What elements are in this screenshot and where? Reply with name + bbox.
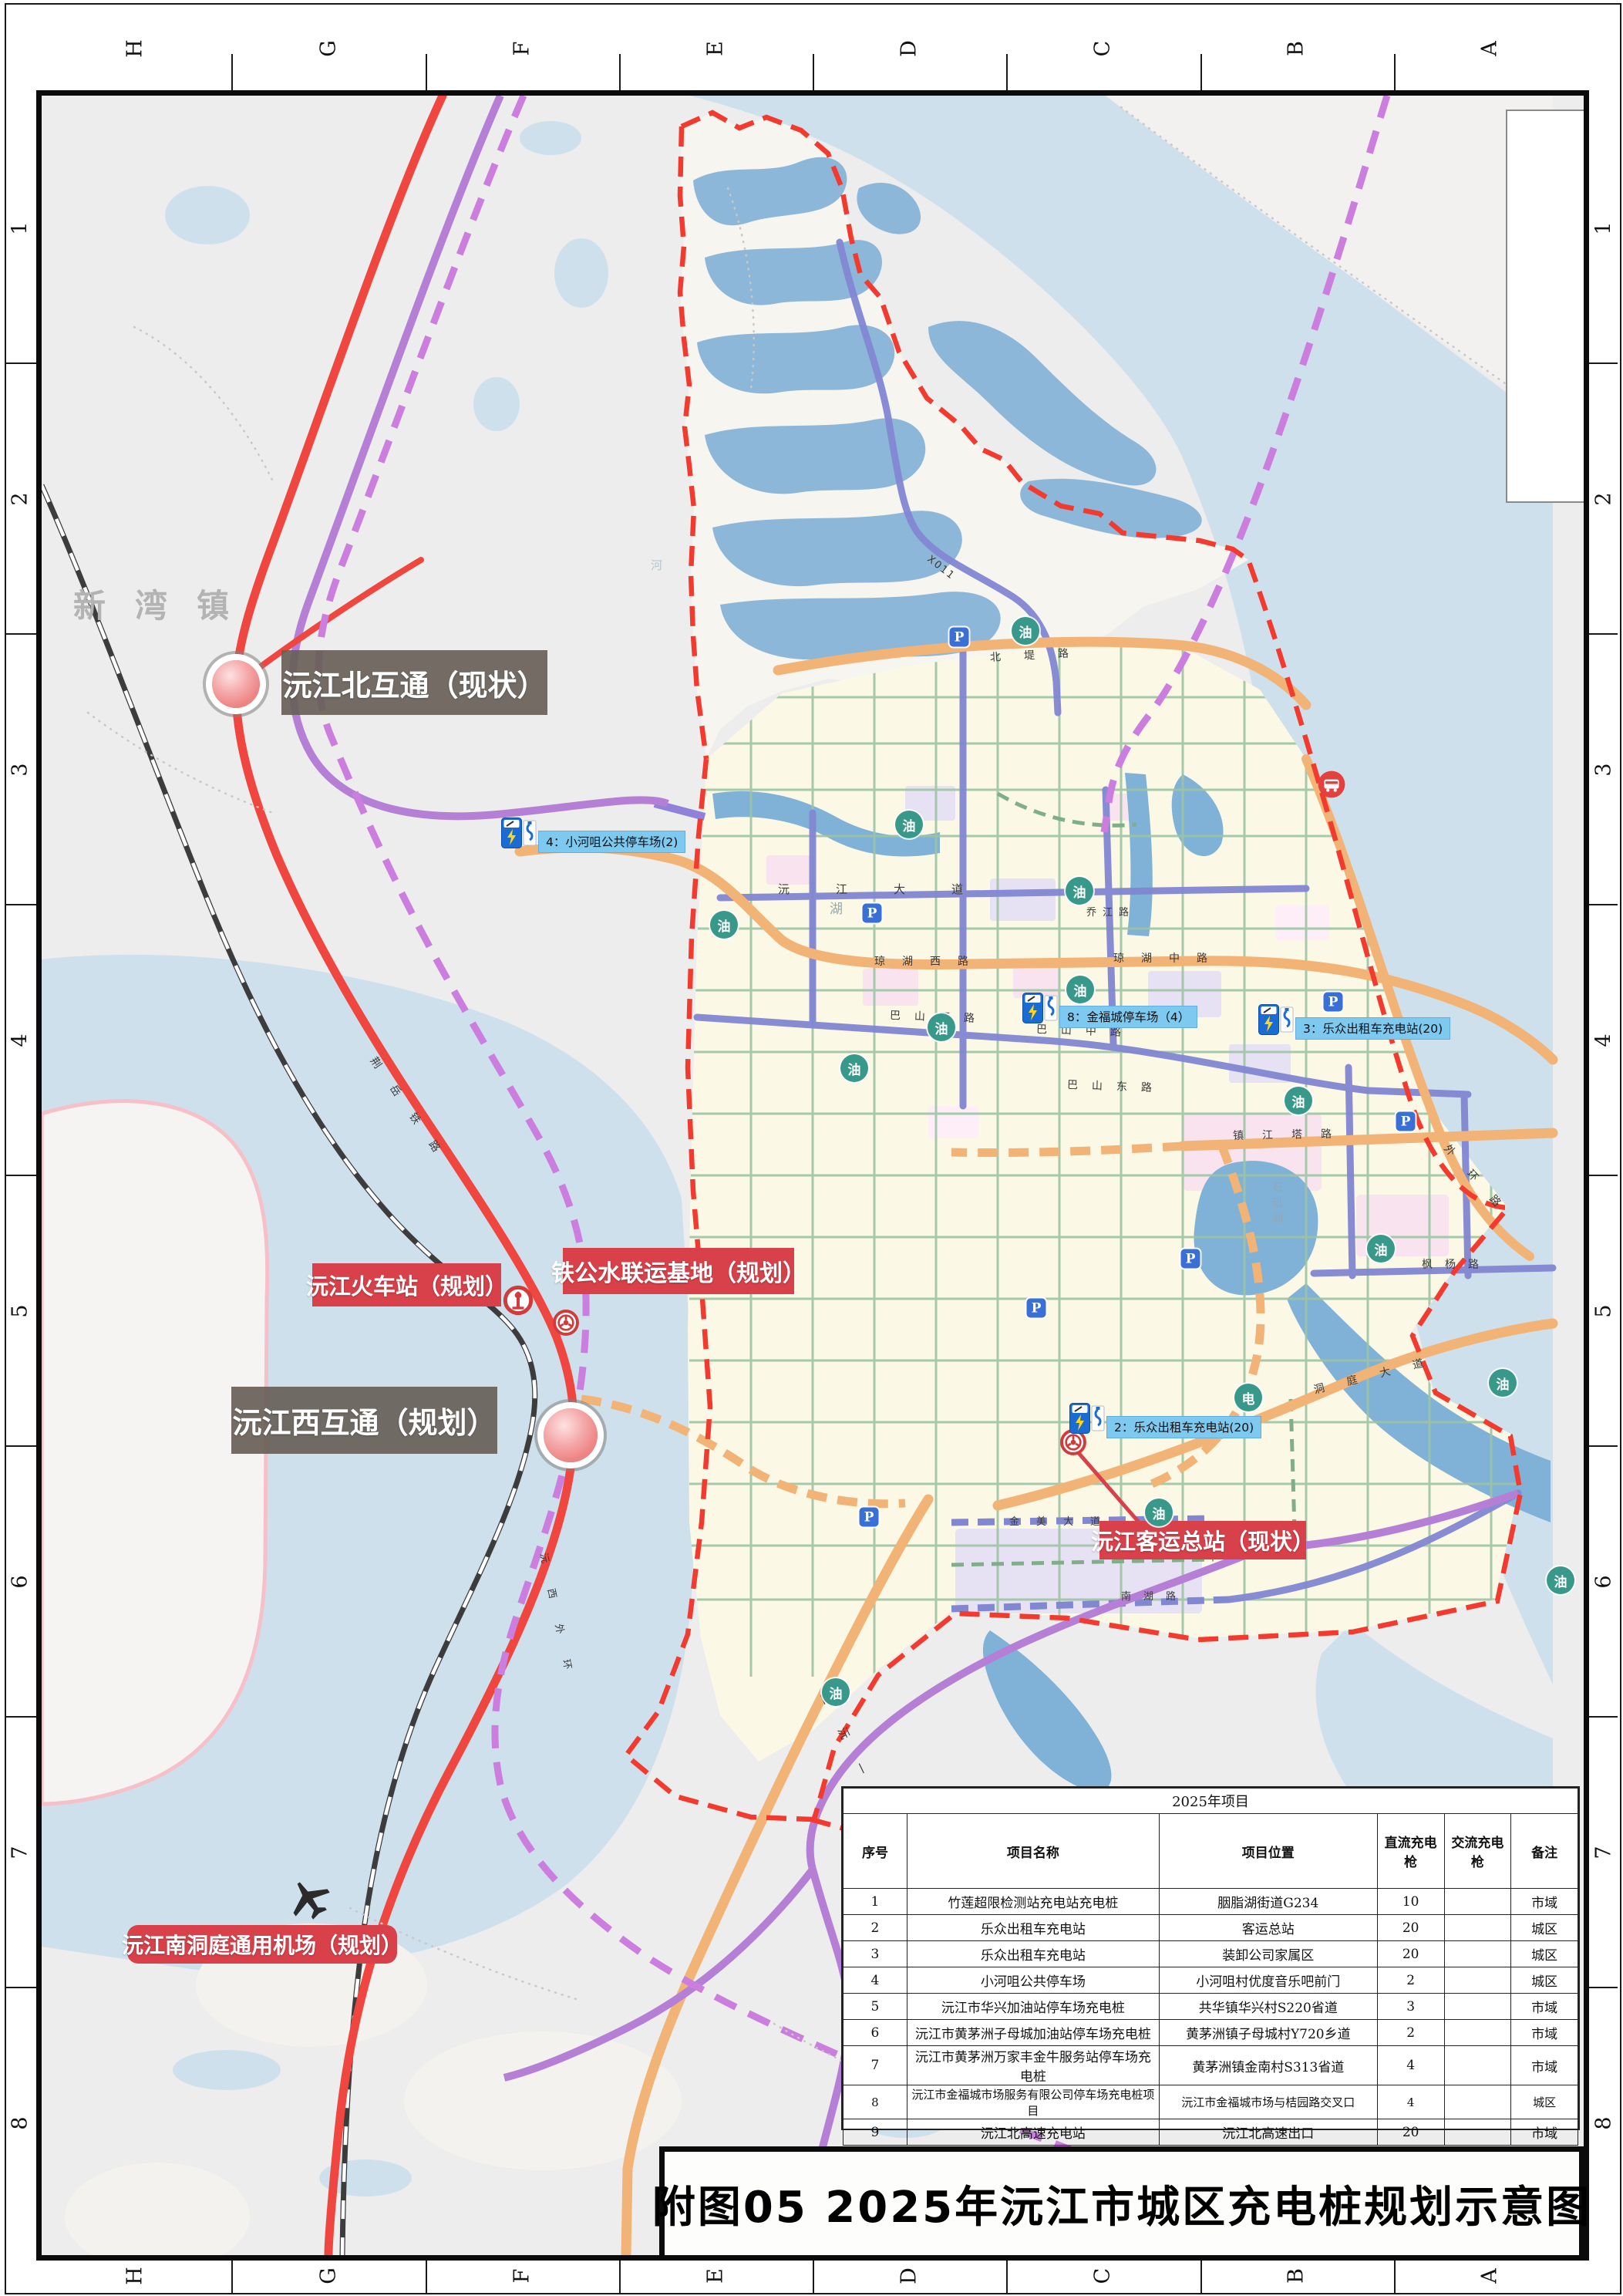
parking-icon: P [1027, 1299, 1046, 1318]
grid-tick [231, 54, 233, 93]
gas-station-icon: 油 [1367, 1235, 1395, 1263]
grid-tick [1394, 54, 1396, 93]
table-row: 7沅江市黄茅洲万家丰金牛服务站停车场充电桩黄茅洲镇金南村S313省道4市域 [843, 2046, 1578, 2085]
gas-station-icon: 油 [1012, 617, 1039, 645]
table-cell: 20 [1377, 1941, 1444, 1967]
charging-pile-icon [1258, 1004, 1294, 1038]
grid-tick [1586, 362, 1618, 364]
table-cell [1444, 2020, 1511, 2046]
grid-tick [1006, 54, 1008, 93]
table-row: 2乐众出租车充电站客运总站20城区 [843, 1915, 1578, 1941]
gas-station-icon: 油 [710, 911, 738, 939]
grid-tick [813, 54, 814, 93]
charging-pile-icon [1022, 993, 1058, 1027]
bus-station-icon [1317, 770, 1346, 802]
table-cell: 3 [1377, 1994, 1444, 2020]
road-name-label: 南湖路 [1121, 1588, 1188, 1603]
grid-tick [813, 2258, 814, 2293]
table-cell [1444, 1941, 1511, 1967]
grid-tick [231, 2258, 233, 2293]
charging-station-label: 8：金福城停车场（4） [1022, 993, 1197, 1028]
grid-letter-e-top: E [704, 41, 728, 56]
table-row: 5沅江市华兴加油站停车场充电桩共华镇华兴村S220省道3市域 [843, 1994, 1578, 2020]
table-cell: 沅江市黄茅洲子母城加油站停车场充电桩 [907, 2020, 1159, 2046]
parking-icon: P [1396, 1112, 1416, 1131]
gas-station-icon: 油 [1285, 1087, 1312, 1114]
table-cell: 市域 [1511, 2046, 1578, 2085]
gas-station-icon: 油 [1489, 1369, 1517, 1397]
grid-number-2-left: 2 [8, 492, 32, 505]
grid-letter-c-top: C [1091, 41, 1115, 57]
grid-tick [6, 1175, 38, 1176]
table-cell: 沅江市黄茅洲万家丰金牛服务站停车场充电桩 [907, 2046, 1159, 2085]
table-cell: 6 [843, 2020, 907, 2046]
charging-pile-icon [1069, 1403, 1105, 1437]
grid-letter-a-top: A [1478, 41, 1502, 56]
drawing-title: 附图05 2025年沅江市城区充电桩规划示意图 [652, 2173, 1591, 2235]
grid-number-8-left: 8 [8, 2116, 32, 2129]
table-cell: 5 [843, 1994, 907, 2020]
table-header-cell: 项目位置 [1159, 1814, 1377, 1889]
grid-tick [1200, 54, 1202, 93]
table-cell: 市域 [1511, 2020, 1578, 2046]
grid-letter-f-top: F [510, 42, 534, 56]
grid-letter-d-bottom: D [897, 2267, 921, 2284]
transport-hub-icon [552, 1309, 580, 1340]
table-cell: 2 [1377, 2020, 1444, 2046]
table-cell: 1 [843, 1889, 907, 1915]
road-name-label: 琼湖中路 [1113, 950, 1224, 966]
table-row: 3乐众出租车充电站装卸公司家属区20城区 [843, 1941, 1578, 1967]
table-cell: 客运总站 [1159, 1915, 1377, 1941]
callout-label-red: 沅江火车站（规划） [312, 1263, 501, 1306]
grid-tick [6, 633, 38, 635]
grid-number-7-right: 7 [1592, 1846, 1616, 1859]
charging-station-label-text: 8：金福城停车场（4） [1059, 1006, 1197, 1028]
grid-tick [6, 904, 38, 905]
grid-number-8-right: 8 [1592, 2116, 1616, 2129]
table-cell [1444, 1889, 1511, 1915]
water-name-label: 石矶湖 [1269, 1182, 1285, 1228]
grid-letter-h-bottom: H [123, 2267, 147, 2285]
table-cell: 装卸公司家属区 [1159, 1941, 1377, 1967]
grid-number-4-right: 4 [1592, 1033, 1616, 1047]
gas-station-icon: 油 [1066, 877, 1093, 905]
parking-icon: P [1181, 1249, 1200, 1269]
charging-station-label: 2：乐众出租车充电站(20) [1069, 1403, 1261, 1438]
table-cell: 市域 [1511, 1889, 1578, 1915]
table-cell: 市域 [1511, 2119, 1578, 2146]
table-cell: 沅江北高速出口 [1159, 2119, 1377, 2146]
grid-tick [1586, 633, 1618, 635]
map-canvas: 新湾镇湖河石矶湖沅江大道琼湖西路琼湖中路巴山西路巴山中路巴山东路北堤路镇江塔路枫… [36, 90, 1589, 2261]
table-cell: 9 [843, 2119, 907, 2146]
grid-letter-d-top: D [897, 40, 921, 57]
table-cell: 城区 [1511, 1941, 1578, 1967]
grid-tick [1586, 904, 1618, 905]
title-block: 附图05 2025年沅江市城区充电桩规划示意图 [659, 2146, 1584, 2261]
grid-number-5-left: 5 [8, 1304, 32, 1317]
grid-tick [1200, 2258, 1202, 2293]
grid-tick [6, 1987, 38, 1988]
table-header-cell: 直流充电枪 [1377, 1814, 1444, 1889]
callout-label-red: 沅江客运总站（现状） [1099, 1521, 1306, 1559]
grid-letter-c-bottom: C [1091, 2268, 1115, 2284]
table-row: 4小河咀公共停车场小河咀村优度音乐吧前门2城区 [843, 1967, 1578, 1994]
table-cell: 乐众出租车充电站 [907, 1915, 1159, 1941]
grid-tick [6, 362, 38, 364]
table-cell: 竹莲超限检测站充电站充电桩 [907, 1889, 1159, 1915]
grid-letter-g-bottom: G [317, 2267, 341, 2284]
table-cell: 3 [843, 1941, 907, 1967]
charging-station-label: 4：小河咀公共停车场(2) [501, 818, 685, 853]
parking-icon: P [950, 628, 969, 647]
table-cell [1444, 2085, 1511, 2119]
interchange-marker [544, 1408, 598, 1462]
grid-letter-h-top: H [123, 39, 147, 58]
grid-number-2-right: 2 [1592, 492, 1616, 505]
table-cell: 小河咀村优度音乐吧前门 [1159, 1967, 1377, 1994]
table-header-cell: 序号 [843, 1814, 907, 1889]
grid-tick [1586, 1716, 1618, 1718]
table-cell [1444, 2119, 1511, 2146]
table-cell: 2 [1377, 1967, 1444, 1994]
table-title: 2025年项目 [843, 1789, 1578, 1814]
table-cell: 沅江市金福城市场服务有限公司停车场充电桩项目 [907, 2085, 1159, 2119]
interchange-marker [212, 660, 260, 708]
grid-tick [1006, 2258, 1008, 2293]
table-cell: 城区 [1511, 1967, 1578, 1994]
road-name-label: 枫杨路 [1422, 1256, 1491, 1272]
table-cell: 小河咀公共停车场 [907, 1967, 1159, 1994]
grid-number-5-right: 5 [1592, 1304, 1616, 1317]
gas-station-icon: 油 [895, 811, 923, 838]
table-cell: 7 [843, 2046, 907, 2085]
drawing-sheet: HHGGFFEEDDCCBBAA1122334455667788 [0, 0, 1623, 2296]
project-table: 2025年项目序号项目名称项目位置直流充电枪交流充电枪备注1竹莲超限检测站充电站… [841, 1786, 1580, 2130]
table-cell [1444, 2046, 1511, 2085]
gas-station-icon: 油 [1145, 1499, 1173, 1526]
road-name-label: 琼湖西路 [874, 953, 985, 969]
grid-number-1-left: 1 [8, 221, 32, 234]
table-header-cell: 备注 [1511, 1814, 1578, 1889]
grid-tick [1394, 2258, 1396, 2293]
table-cell: 2 [843, 1915, 907, 1941]
grid-number-6-left: 6 [8, 1575, 32, 1588]
table-cell: 8 [843, 2085, 907, 2119]
water-name-label: 河 [651, 557, 662, 573]
grid-letter-a-bottom: A [1478, 2268, 1502, 2284]
grid-number-3-left: 3 [8, 763, 32, 776]
table-cell: 城区 [1511, 1915, 1578, 1941]
table-cell: 黄茅洲镇子母城村Y720乡道 [1159, 2020, 1377, 2046]
table-header-cell: 项目名称 [907, 1814, 1159, 1889]
grid-tick [619, 2258, 621, 2293]
grid-number-4-left: 4 [8, 1033, 32, 1047]
table-cell: 沅江市华兴加油站停车场充电桩 [907, 1994, 1159, 2020]
grid-letter-g-top: G [317, 40, 341, 57]
grid-tick [1586, 1175, 1618, 1176]
charging-pile-icon [501, 818, 537, 851]
grid-number-6-right: 6 [1592, 1575, 1616, 1588]
table-cell: 沅江北高速充电站 [907, 2119, 1159, 2146]
grid-letter-b-bottom: B [1285, 2268, 1308, 2284]
legend-box [1506, 110, 1589, 503]
gas-station-icon: 油 [822, 1678, 850, 1706]
parking-icon: P [860, 1508, 879, 1527]
table-cell: 胭脂湖街道G234 [1159, 1889, 1377, 1915]
grid-letter-b-top: B [1285, 41, 1308, 56]
grid-tick [426, 54, 427, 93]
table-cell: 共华镇华兴村S220省道 [1159, 1994, 1377, 2020]
gas-station-icon: 油 [840, 1054, 868, 1082]
table-cell: 4 [843, 1967, 907, 1994]
table-cell: 黄茅洲镇金南村S313省道 [1159, 2046, 1377, 2085]
table-cell: 10 [1377, 1889, 1444, 1915]
road-name-label: 沅江大道 [778, 881, 1009, 897]
callout-label-gray: 沅江西互通（规划） [231, 1387, 497, 1454]
table-cell [1444, 1994, 1511, 2020]
charging-station-label-text: 3：乐众出租车充电站(20) [1295, 1017, 1450, 1040]
grid-tick [426, 2258, 427, 2293]
table-cell [1444, 1915, 1511, 1941]
callout-label-red: 沅江南洞庭通用机场（规划） [127, 1925, 397, 1964]
parking-icon: P [863, 904, 882, 923]
grid-letter-e-bottom: E [704, 2268, 728, 2284]
road-name-label: 镇江塔路 [1233, 1125, 1350, 1143]
railway-station-icon [503, 1285, 534, 1319]
table-row: 1竹莲超限检测站充电站充电桩胭脂湖街道G23410市域 [843, 1889, 1578, 1915]
charging-station-label: 3：乐众出租车充电站(20) [1258, 1004, 1450, 1040]
table-cell: 20 [1377, 2119, 1444, 2146]
charging-station-label-text: 2：乐众出租车充电站(20) [1106, 1416, 1261, 1438]
grid-letter-f-bottom: F [510, 2269, 534, 2284]
project-table-grid: 2025年项目序号项目名称项目位置直流充电枪交流充电枪备注1竹莲超限检测站充电站… [843, 1788, 1578, 2146]
water-name-label: 湖 [830, 898, 843, 917]
table-cell: 乐众出租车充电站 [907, 1941, 1159, 1967]
gas-station-icon: 油 [928, 1013, 955, 1041]
table-row: 9沅江北高速充电站沅江北高速出口20市域 [843, 2119, 1578, 2146]
table-header-cell: 交流充电枪 [1444, 1814, 1511, 1889]
grid-tick [6, 1445, 38, 1447]
table-cell: 沅江市金福城市场与桔园路交叉口 [1159, 2085, 1377, 2119]
grid-number-3-right: 3 [1592, 763, 1616, 776]
charging-station-label-text: 4：小河咀公共停车场(2) [538, 831, 685, 853]
road-name-label: 乔江路 [1086, 904, 1135, 919]
callout-label-gray: 沅江北互通（现状） [281, 650, 547, 715]
grid-tick [1586, 1987, 1618, 1988]
gas-station-icon: 油 [1547, 1566, 1574, 1594]
table-cell: 4 [1377, 2046, 1444, 2085]
table-cell: 4 [1377, 2085, 1444, 2119]
grid-tick [6, 1716, 38, 1718]
grid-tick [619, 54, 621, 93]
table-cell: 城区 [1511, 2085, 1578, 2119]
grid-tick [1586, 1445, 1618, 1447]
town-name-label: 新湾镇 [73, 580, 258, 627]
table-row: 6沅江市黄茅洲子母城加油站停车场充电桩黄茅洲镇子母城村Y720乡道2市域 [843, 2020, 1578, 2046]
table-row: 8沅江市金福城市场服务有限公司停车场充电桩项目沅江市金福城市场与桔园路交叉口4城… [843, 2085, 1578, 2119]
table-cell: 20 [1377, 1915, 1444, 1941]
table-cell: 市域 [1511, 1994, 1578, 2020]
grid-number-1-right: 1 [1592, 221, 1616, 234]
callout-label-red: 铁公水联运基地（规划） [563, 1248, 794, 1294]
table-cell [1444, 1967, 1511, 1994]
grid-number-7-left: 7 [8, 1846, 32, 1859]
